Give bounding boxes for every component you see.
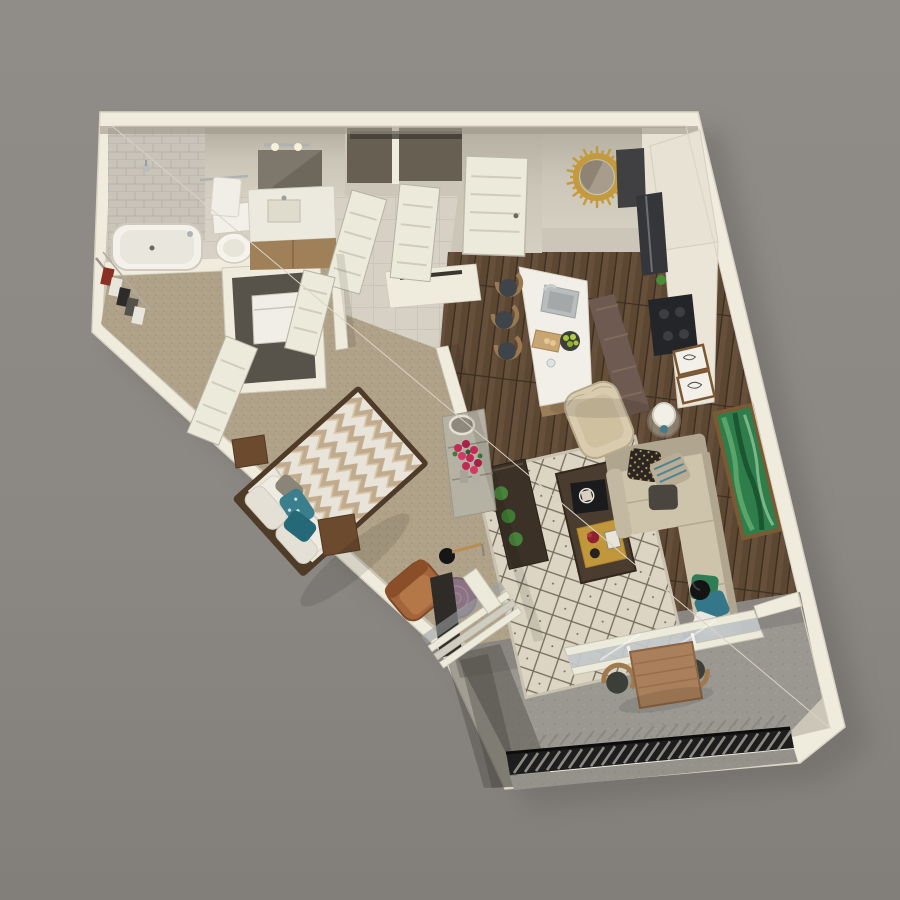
table-lamp [653,403,675,427]
floorplan-stage [0,0,900,900]
framed-sketch-1 [674,345,709,375]
black-floor-lamp [690,580,710,600]
vanity-sink [268,200,300,222]
tub-faucet-icon [187,231,193,237]
framed-sketch-2 [677,371,714,404]
floorplan-3d-render [0,0,900,900]
nightstand [232,435,268,468]
towel [210,177,241,217]
pillow-gray [648,484,678,510]
entry-door [463,156,528,256]
counter-plant-icon [656,275,666,285]
glass-icon [547,359,555,367]
